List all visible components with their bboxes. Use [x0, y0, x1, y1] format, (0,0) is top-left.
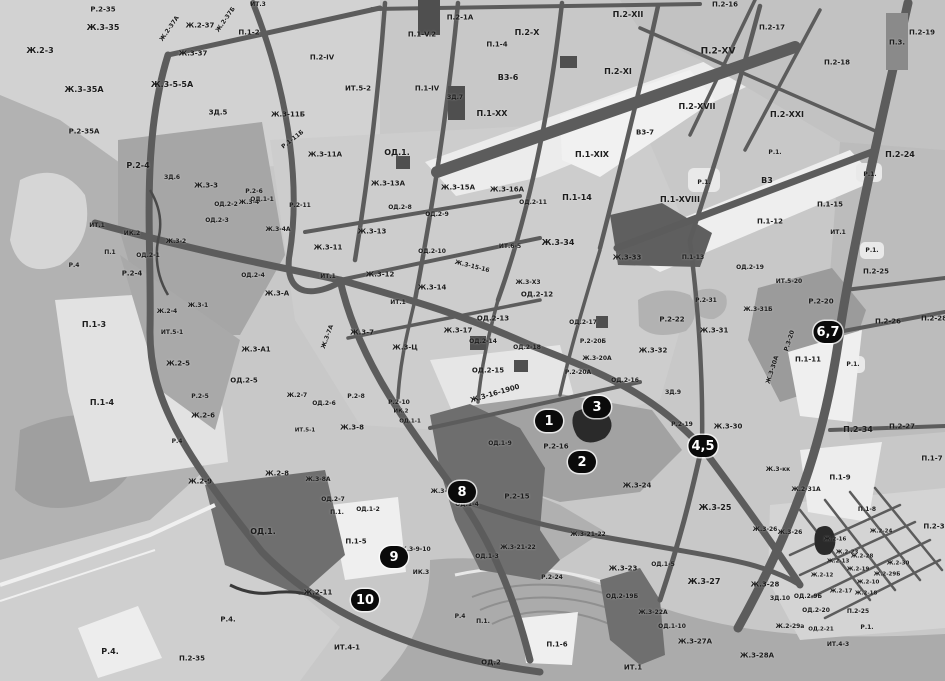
- zoning-map: Р.2-35Ж.3-35Ж.2-37Ж.2-37АЖ.2-37БЖ.3-37П.…: [0, 0, 945, 681]
- poi-marker[interactable]: 8: [448, 481, 476, 503]
- marker-layer: 1234,56,78910: [0, 0, 945, 681]
- poi-marker[interactable]: 1: [535, 410, 563, 432]
- poi-marker[interactable]: 4,5: [688, 435, 717, 457]
- poi-marker[interactable]: 2: [568, 451, 596, 473]
- poi-marker[interactable]: 9: [380, 546, 408, 568]
- poi-marker[interactable]: 10: [351, 589, 379, 611]
- poi-marker[interactable]: 3: [583, 396, 611, 418]
- poi-marker[interactable]: 6,7: [813, 321, 842, 343]
